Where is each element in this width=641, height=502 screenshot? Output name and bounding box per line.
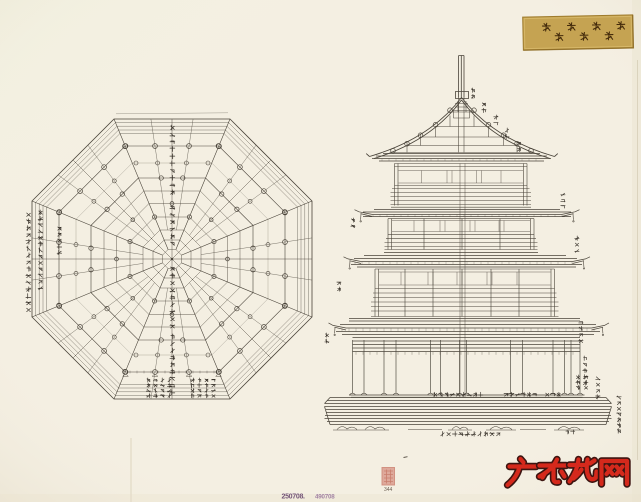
svg-text:250708.: 250708. [282,494,306,501]
svg-text:344: 344 [384,487,393,493]
svg-text:490708: 490708 [315,494,335,501]
